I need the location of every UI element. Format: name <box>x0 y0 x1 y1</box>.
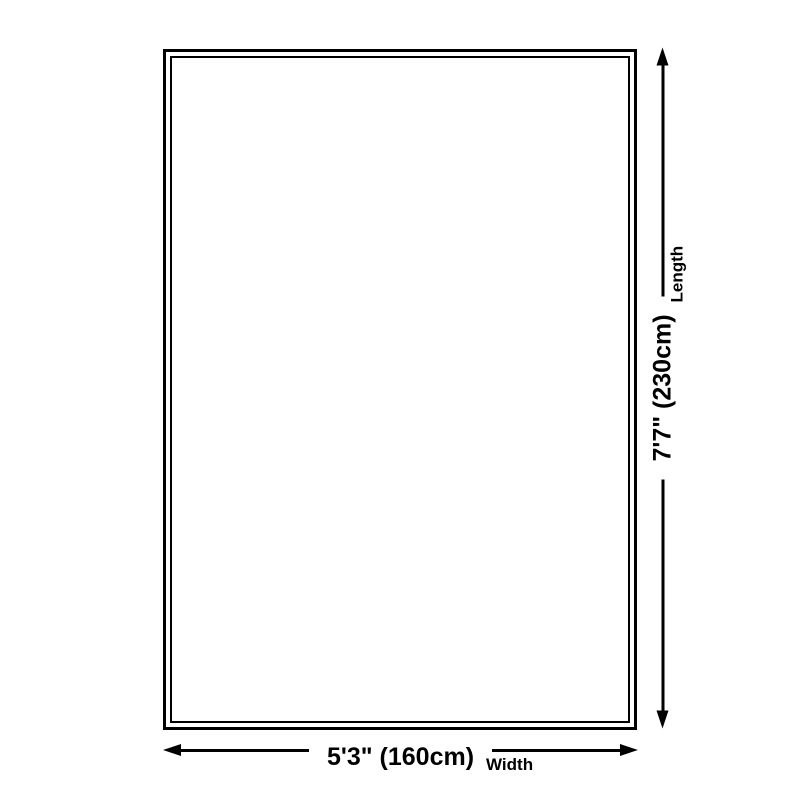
arrow-right-icon <box>620 744 638 756</box>
dimension-line-segment: Length <box>661 65 664 296</box>
width-value-label: 5'3" (160cm) <box>327 745 474 770</box>
length-value-label: 7'7" (230cm) <box>650 314 675 461</box>
width-axis-label: Width <box>486 756 533 773</box>
dimension-line-segment: Width <box>492 749 620 752</box>
dimension-line-segment <box>181 749 309 752</box>
width-dimension: 5'3" (160cm) Width <box>163 728 638 772</box>
arrow-left-icon <box>163 744 181 756</box>
rug-size-diagram: 5'3" (160cm) Width 7'7" (230cm) Length <box>0 0 800 800</box>
length-dimension: 7'7" (230cm) Length <box>641 48 685 729</box>
length-axis-label: Length <box>668 246 685 303</box>
arrow-up-icon <box>657 47 669 65</box>
arrow-down-icon <box>657 711 669 729</box>
rug-outline <box>163 49 637 730</box>
dimension-line-segment <box>661 480 664 711</box>
rug-inner-outline <box>170 56 630 723</box>
